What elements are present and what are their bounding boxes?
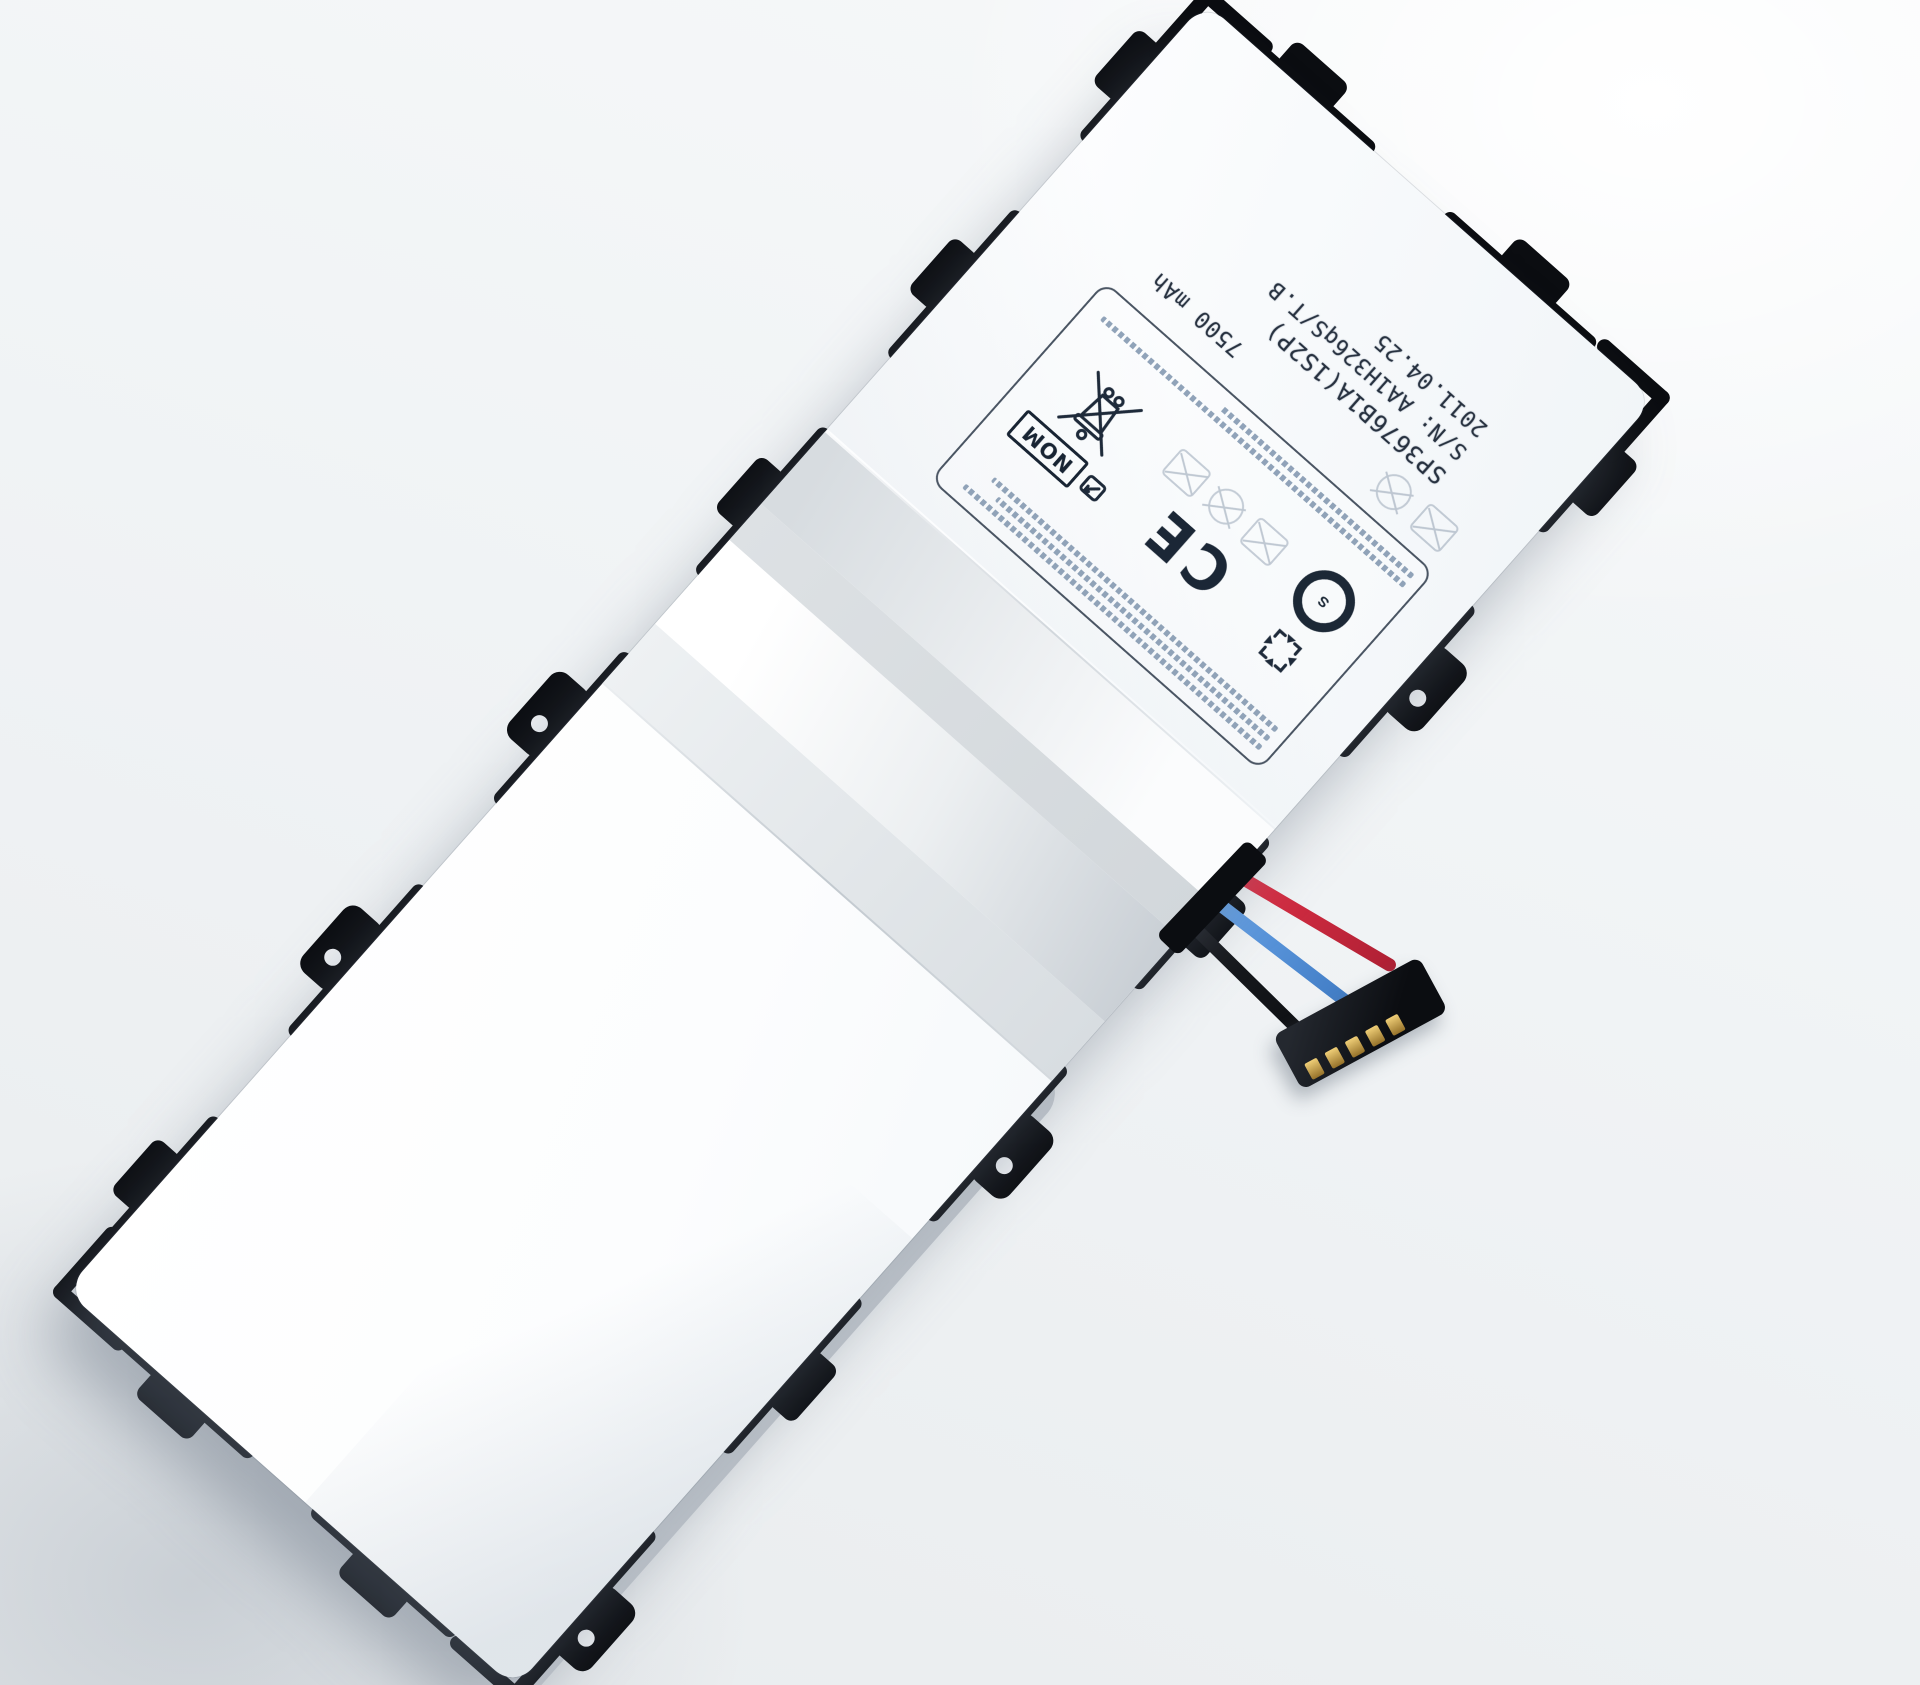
mounting-hole [527, 712, 551, 736]
connector-pin [1345, 1036, 1366, 1058]
mounting-hole [992, 1154, 1016, 1178]
connector-pins [1304, 1014, 1406, 1080]
mounting-hole [321, 945, 345, 969]
connector-pin [1304, 1058, 1325, 1080]
prohibition-icon [1160, 447, 1212, 499]
connector-pin [1385, 1014, 1406, 1036]
connector-pin [1365, 1025, 1386, 1047]
prohibition-icon [1238, 516, 1290, 568]
recycle-icon [1247, 619, 1312, 684]
s-mark-letter: S [1314, 592, 1333, 611]
prohibition-icon [1368, 467, 1419, 518]
mounting-hole [1406, 686, 1430, 710]
connector-plug [1273, 957, 1448, 1091]
product-photo: S CE [0, 0, 1920, 1685]
battery-pack: S CE [65, 2, 1654, 1685]
connector-pin [1324, 1047, 1345, 1069]
certification-pictogram-icon [1074, 470, 1111, 507]
prohibition-icon [1408, 502, 1460, 554]
mounting-hole [574, 1626, 598, 1650]
